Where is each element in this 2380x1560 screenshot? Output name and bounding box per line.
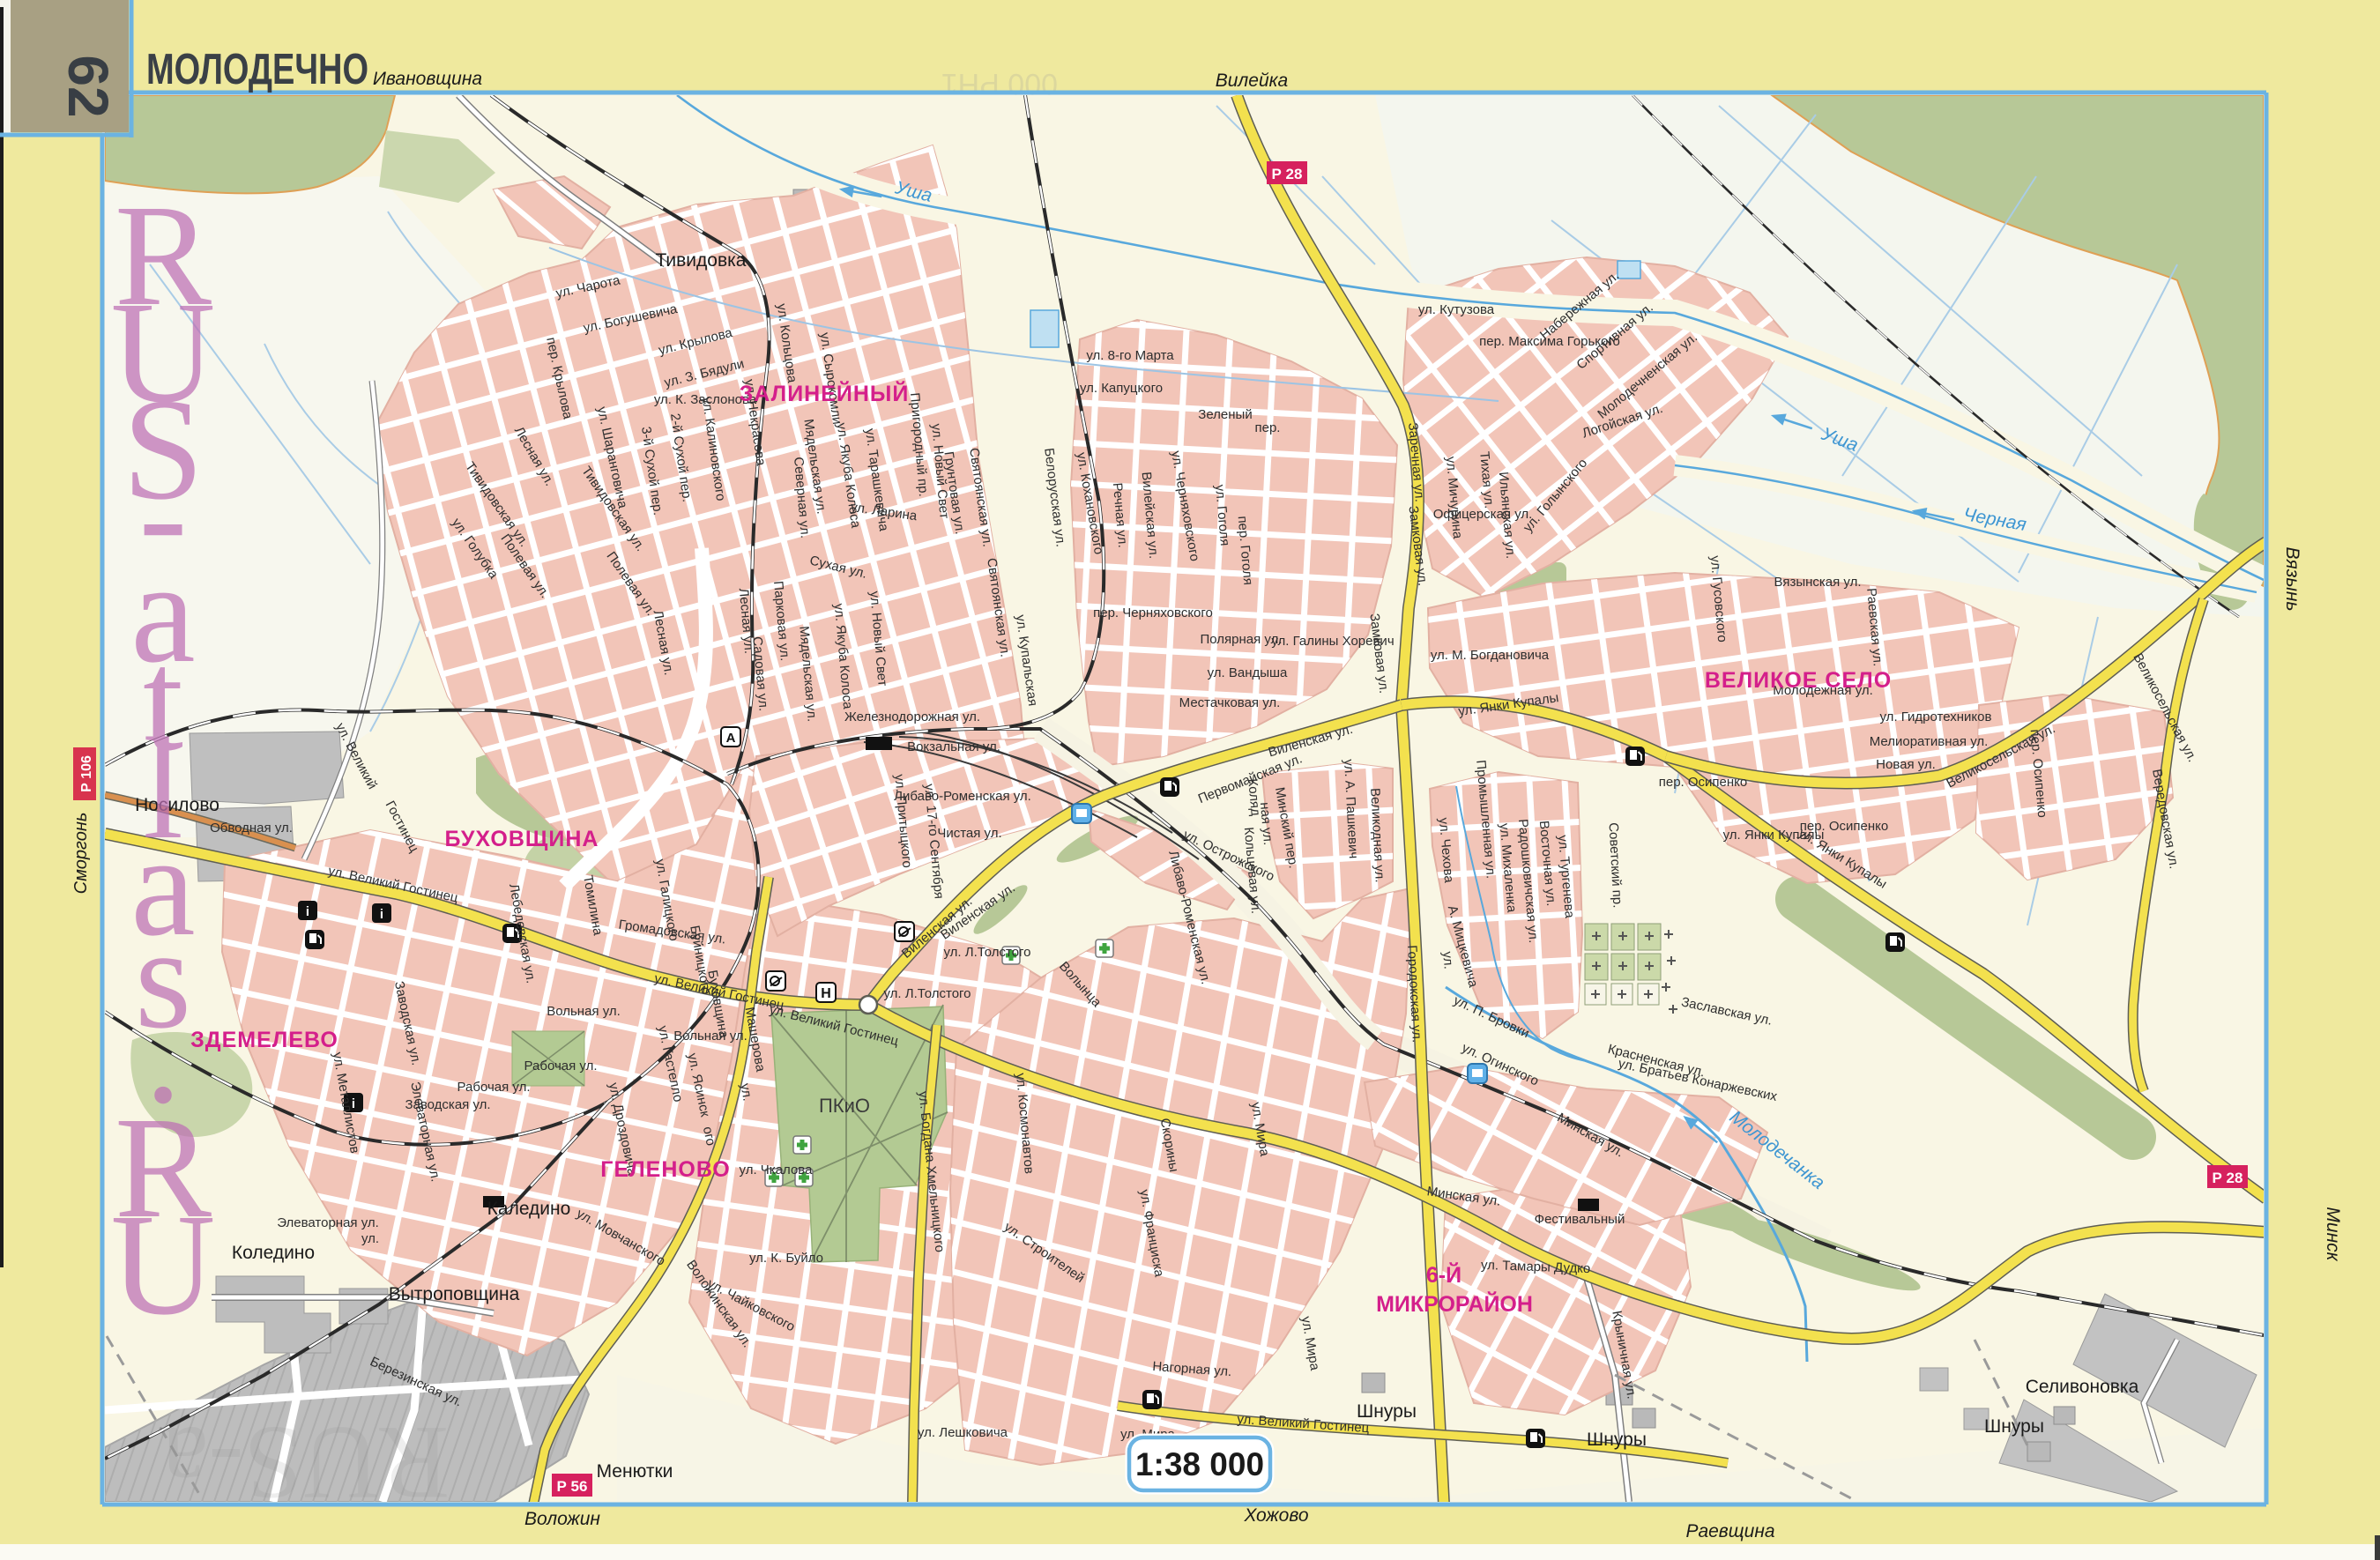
svg-text:Местачковая ул.: Местачковая ул. bbox=[1179, 695, 1281, 710]
svg-text:Фестивальный: Фестивальный bbox=[1535, 1212, 1625, 1227]
svg-text:Ивановщина: Ивановщина bbox=[373, 69, 482, 89]
svg-text:ул. Л.Толстого: ул. Л.Толстого bbox=[943, 945, 1030, 960]
svg-text:i: i bbox=[380, 907, 383, 922]
svg-text:ул. Капуцкого: ул. Капуцкого bbox=[1080, 381, 1163, 396]
svg-text:i: i bbox=[306, 904, 309, 919]
svg-text:Элеваторная ул.: Элеваторная ул. bbox=[277, 1215, 379, 1230]
svg-text:Чистая ул.: Чистая ул. bbox=[937, 826, 1001, 841]
svg-text:ул.: ул. bbox=[1439, 951, 1456, 969]
svg-text:62: 62 bbox=[56, 55, 120, 117]
svg-text:ул.: ул. bbox=[361, 1231, 379, 1246]
svg-text:Вольная ул.: Вольная ул. bbox=[547, 1004, 621, 1019]
svg-text:ул. К. Буйло: ул. К. Буйло bbox=[749, 1251, 823, 1266]
svg-text:МИКРОРАЙОН: МИКРОРАЙОН bbox=[1376, 1290, 1533, 1317]
svg-text:Шнуры: Шнуры bbox=[1357, 1401, 1417, 1422]
svg-text:ПКиО: ПКиО bbox=[819, 1095, 870, 1117]
svg-text:ГЕЛЕНОВО: ГЕЛЕНОВО bbox=[600, 1157, 730, 1182]
svg-text:ул. Чкалова: ул. Чкалова bbox=[740, 1163, 814, 1177]
svg-text:Менютки: Менютки bbox=[597, 1461, 673, 1482]
svg-text:Новая ул.: Новая ул. bbox=[1876, 757, 1936, 772]
svg-text:Рабочая ул.: Рабочая ул. bbox=[457, 1080, 531, 1095]
svg-text:ул. 8-го Марта: ул. 8-го Марта bbox=[1086, 348, 1174, 363]
svg-text:Тивидовка: Тивидовка bbox=[656, 250, 747, 271]
svg-text:ул. Лешковича: ул. Лешковича bbox=[918, 1425, 1008, 1440]
svg-text:ул. Л.Толстого: ул. Л.Толстого bbox=[883, 986, 971, 1001]
svg-text:Вязынская ул.: Вязынская ул. bbox=[1774, 575, 1861, 590]
svg-text:6-Й: 6-Й bbox=[1426, 1261, 1461, 1288]
svg-text:ул. Гидротехников: ул. Гидротехников bbox=[1880, 709, 1992, 724]
svg-text:000 РН1: 000 РН1 bbox=[941, 67, 1058, 100]
svg-text:U: U bbox=[110, 1184, 215, 1345]
svg-text:Зеленый: Зеленый bbox=[1198, 407, 1252, 422]
svg-text:Минск: Минск bbox=[2323, 1207, 2343, 1261]
svg-text:Вокзальная ул.: Вокзальная ул. bbox=[907, 739, 1000, 754]
svg-text:Р 28: Р 28 bbox=[2213, 1170, 2243, 1186]
svg-text:ул. Кутузова: ул. Кутузова bbox=[1418, 302, 1495, 317]
svg-text:пер. Черняховского: пер. Черняховского bbox=[1093, 605, 1213, 620]
svg-text:Р 28: Р 28 bbox=[1272, 166, 1303, 182]
svg-text:1:38 000: 1:38 000 bbox=[1135, 1446, 1264, 1482]
svg-text:Вытроповщина: Вытроповщина bbox=[389, 1284, 520, 1304]
svg-text:Мелиоративная ул.: Мелиоративная ул. bbox=[1870, 734, 1989, 749]
svg-text:Шнуры: Шнуры bbox=[1587, 1430, 1647, 1450]
svg-text:пер.: пер. bbox=[1255, 420, 1281, 435]
svg-text:Р 56: Р 56 bbox=[557, 1478, 588, 1495]
svg-text:ул. Вандыша: ул. Вандыша bbox=[1208, 665, 1288, 680]
svg-text:Коледино: Коледино bbox=[232, 1243, 315, 1263]
svg-text:Офицерская ул.: Офицерская ул. bbox=[1433, 507, 1533, 522]
svg-text:Каледино: Каледино bbox=[487, 1199, 571, 1219]
svg-text:Воложин: Воложин bbox=[524, 1509, 600, 1529]
svg-text:ул. М. Богдановича: ул. М. Богдановича bbox=[1431, 648, 1550, 663]
svg-text:Рабочая ул.: Рабочая ул. bbox=[524, 1059, 598, 1073]
svg-text:ЗАЛИНЕЙНЫЙ: ЗАЛИНЕЙНЫЙ bbox=[740, 380, 910, 406]
svg-text:БУХОВЩИНА: БУХОВЩИНА bbox=[445, 827, 599, 851]
svg-text:А: А bbox=[726, 731, 736, 746]
svg-text:Раевщина: Раевщина bbox=[1685, 1521, 1774, 1541]
svg-text:пер. Осипенко: пер. Осипенко bbox=[1659, 775, 1748, 790]
svg-text:Обводная ул.: Обводная ул. bbox=[210, 821, 293, 836]
svg-text:Шнуры: Шнуры bbox=[1984, 1416, 2044, 1437]
svg-text:ЗДЕМЕЛЕВО: ЗДЕМЕЛЕВО bbox=[190, 1028, 338, 1052]
svg-text:Вольная ул.: Вольная ул. bbox=[673, 1029, 747, 1044]
svg-text:ул.: ул. bbox=[737, 1082, 755, 1103]
svg-text:ВЕЛИКОЕ СЕЛО: ВЕЛИКОЕ СЕЛО bbox=[1705, 668, 1892, 693]
svg-text:Сморгонь: Сморгонь bbox=[71, 813, 91, 895]
svg-text:Вилейка: Вилейка bbox=[1216, 71, 1288, 91]
svg-text:Полярная ул.: Полярная ул. bbox=[1200, 632, 1282, 647]
svg-text:Р 106: Р 106 bbox=[79, 755, 94, 792]
svg-text:Железнодорожная ул.: Железнодорожная ул. bbox=[844, 709, 980, 724]
svg-text:Хожово: Хожово bbox=[1243, 1505, 1308, 1526]
svg-text:Либаво-Роменская ул.: Либаво-Роменская ул. bbox=[894, 789, 1031, 804]
svg-text:Селивоновка: Селивоновка bbox=[2026, 1377, 2139, 1397]
svg-text:Вязынь: Вязынь bbox=[2282, 546, 2302, 611]
svg-text:МОЛОДЕЧНО: МОЛОДЕЧНО bbox=[146, 46, 368, 93]
svg-text:Н: Н bbox=[821, 986, 831, 1001]
